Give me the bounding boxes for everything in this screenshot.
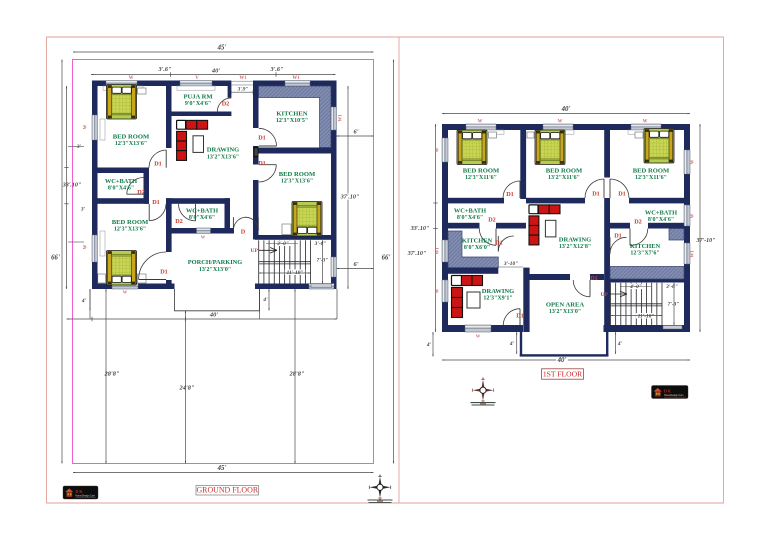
svg-text:1ST FLOOR: 1ST FLOOR [543,369,583,378]
svg-text:D1: D1 [516,313,524,320]
svg-text:3'.9": 3'.9" [237,88,249,93]
svg-text:3': 3' [80,207,86,213]
svg-text:OPEN AREA: OPEN AREA [546,302,585,309]
svg-text:D1: D1 [160,269,168,276]
svg-text:D K: D K [664,389,672,394]
svg-text:D1: D1 [495,240,503,247]
svg-text:13'2"X13'0": 13'2"X13'0" [199,267,231,273]
svg-text:V: V [195,76,199,81]
svg-text:3'-6": 3'-6" [314,241,327,247]
svg-text:4': 4' [509,341,515,347]
svg-text:8'0"X4'6": 8'0"X4'6" [189,215,215,221]
svg-text:12'3"X11'6": 12'3"X11'6" [465,175,497,181]
svg-text:D1: D1 [258,160,266,167]
svg-text:W: W [129,76,134,81]
svg-text:8'0"X4'6": 8'0"X4'6" [457,215,483,221]
svg-text:D2: D2 [222,101,230,108]
svg-text:8'0"X4'6": 8'0"X4'6" [648,217,674,223]
svg-text:3'.6": 3'.6" [158,66,172,73]
svg-text:8'0"X6'0": 8'0"X6'0" [464,245,490,251]
svg-text:D1: D1 [590,275,598,282]
svg-text:W: W [691,159,696,164]
svg-text:KITCHEN: KITCHEN [462,238,493,245]
svg-text:D2: D2 [175,218,183,225]
svg-text:D1: D1 [154,161,162,168]
svg-text:7'-3": 7'-3" [668,302,680,308]
svg-text:28'8": 28'8" [289,371,305,378]
svg-text:3'-6": 3'-6" [665,284,678,290]
svg-text:12'3"X7'6": 12'3"X7'6" [630,251,659,257]
svg-text:BED ROOM: BED ROOM [633,168,670,175]
svg-text:D1: D1 [618,191,626,198]
svg-text:W: W [436,288,441,293]
svg-text:3'-10": 3'-10" [503,261,518,267]
svg-text:D2: D2 [488,217,496,224]
svg-text:3'.6": 3'.6" [270,66,284,73]
svg-text:W: W [84,244,89,249]
svg-text:6': 6' [354,129,359,136]
svg-text:W: W [123,290,128,295]
svg-text:W1: W1 [436,247,441,255]
svg-text:4': 4' [262,297,268,303]
svg-text:4': 4' [617,341,623,347]
svg-text:13'2"X11'6": 13'2"X11'6" [548,175,580,181]
svg-text:GROUND FLOOR: GROUND FLOOR [196,486,258,495]
svg-text:12'3"X11'6": 12'3"X11'6" [635,175,667,181]
svg-text:W: W [201,235,206,240]
svg-text:UP: UP [251,248,259,254]
svg-text:4'-0": 4'-0" [629,284,642,290]
svg-text:4': 4' [81,298,87,304]
svg-text:37'.10": 37'.10" [340,195,360,201]
svg-text:40': 40' [211,68,220,75]
svg-text:BED ROOM: BED ROOM [546,168,583,175]
svg-text:PORCH/PARKING: PORCH/PARKING [188,259,243,266]
svg-text:D K: D K [76,489,84,494]
svg-text:HomeDesign.Com: HomeDesign.Com [76,495,96,498]
svg-text:UP: UP [601,292,609,298]
svg-text:11'-10": 11'-10" [638,314,655,320]
svg-text:BED ROOM: BED ROOM [112,219,149,226]
svg-text:6': 6' [354,261,359,268]
svg-text:13'2"X13'6": 13'2"X13'6" [207,155,239,161]
svg-text:45': 45' [217,465,227,472]
svg-text:8'0"X4'6": 8'0"X4'6" [108,186,134,192]
svg-text:13'2"X13'0": 13'2"X13'0" [549,309,581,315]
svg-text:D2: D2 [634,219,642,226]
svg-text:BED ROOM: BED ROOM [113,134,150,141]
svg-text:WC+BATH: WC+BATH [645,210,677,217]
svg-text:KITCHEN: KITCHEN [630,243,661,250]
svg-text:W1: W1 [239,76,247,81]
svg-text:24'8": 24'8" [179,385,195,392]
svg-text:12'3"X10'5": 12'3"X10'5" [276,118,308,124]
svg-text:D1: D1 [506,191,514,198]
svg-text:W1: W1 [292,76,300,81]
svg-text:12'3"X13'6": 12'3"X13'6" [281,179,313,185]
svg-text:WC+BATH: WC+BATH [186,208,218,215]
svg-text:40': 40' [561,106,571,113]
svg-text:DRAWING: DRAWING [207,147,240,154]
svg-text:HomeDesign.Com: HomeDesign.Com [664,394,684,397]
svg-text:D2: D2 [137,189,145,196]
svg-text:33'.10": 33'.10" [62,183,82,189]
svg-text:66': 66' [382,255,391,262]
svg-text:W: W [84,124,89,129]
svg-text:3': 3' [76,144,82,150]
svg-text:33'.10": 33'.10" [410,226,430,232]
svg-text:D1: D1 [152,199,160,206]
svg-text:W: W [476,334,481,339]
svg-text:66': 66' [51,255,60,262]
svg-text:4': 4' [426,342,432,348]
svg-text:3'-0": 3'-0" [276,241,289,247]
svg-text:12'3"X9'1": 12'3"X9'1" [483,296,512,302]
svg-text:BED ROOM: BED ROOM [463,168,500,175]
svg-text:D1: D1 [258,135,266,142]
svg-text:WC+BATH: WC+BATH [105,178,137,185]
svg-text:BED ROOM: BED ROOM [279,171,316,178]
svg-text:28'8": 28'8" [104,371,120,378]
svg-text:W: W [478,120,483,125]
svg-text:W: W [691,213,696,218]
svg-text:40': 40' [557,357,567,364]
svg-text:37'.10": 37'.10" [407,251,427,257]
svg-text:DRAWING: DRAWING [482,288,515,295]
svg-text:D1: D1 [614,233,622,240]
svg-text:40': 40' [209,312,218,319]
svg-text:W1: W1 [339,114,344,122]
svg-text:37'-10": 37'-10" [696,238,716,244]
svg-text:9'0"X4'6": 9'0"X4'6" [185,101,211,107]
svg-text:WC+BATH: WC+BATH [454,208,486,215]
svg-text:W: W [436,147,441,152]
svg-text:D1: D1 [592,191,600,198]
svg-text:DRAWING: DRAWING [559,237,592,244]
svg-text:12'3"X13'6": 12'3"X13'6" [115,141,147,147]
svg-text:D: D [241,229,246,236]
svg-text:PUJA RM: PUJA RM [183,94,213,101]
svg-text:W: W [643,120,648,125]
svg-text:12'3"X13'6": 12'3"X13'6" [114,227,146,233]
svg-text:45': 45' [217,45,227,52]
svg-text:W: W [558,120,563,125]
svg-text:KITCHEN: KITCHEN [276,111,307,118]
svg-text:W1: W1 [691,250,696,258]
svg-text:13'2"X12'8": 13'2"X12'8" [559,244,591,250]
